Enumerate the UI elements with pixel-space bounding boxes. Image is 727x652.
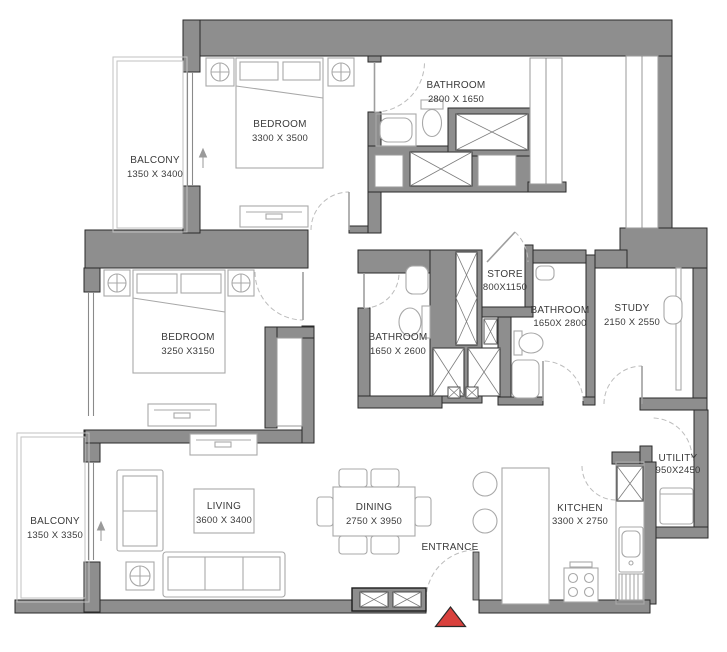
dresser-2	[148, 404, 216, 426]
room-name: BATHROOM	[368, 332, 427, 343]
armchair	[117, 470, 163, 551]
room-dims: 2150 X 2550	[604, 317, 660, 328]
entrance-door	[426, 550, 479, 600]
floor-plan-page: BEDROOM 3300 X 3500 BATHROOM 2800 X 1650…	[0, 0, 727, 652]
room-name: KITCHEN	[557, 503, 603, 514]
drainboard	[619, 574, 643, 600]
room-name: STORE	[487, 269, 523, 280]
dresser-1	[240, 206, 308, 227]
room-name: BEDROOM	[161, 332, 214, 343]
room-label-kitchen: KITCHEN 3300 X 2750	[552, 503, 608, 527]
stove	[564, 562, 598, 602]
tv-console	[190, 434, 257, 455]
room-dims: 800X1150	[483, 282, 527, 293]
room-label-store: STORE 800X1150	[483, 269, 527, 293]
room-name: BEDROOM	[253, 119, 306, 130]
room-dims: 1350 X 3350	[27, 530, 83, 541]
room-dims: 950X2450	[656, 465, 701, 476]
entrance-marker-triangle	[436, 607, 466, 627]
room-dims: 2750 X 3950	[346, 516, 402, 527]
study-desk	[664, 268, 682, 390]
room-label-bedroom-2: BEDROOM 3250 X3150	[161, 332, 214, 357]
bathroom-mid-fixtures	[399, 266, 430, 338]
room-label-bedroom-1: BEDROOM 3300 X 3500	[252, 119, 308, 144]
room-name: LIVING	[207, 501, 241, 512]
room-name: BALCONY	[130, 155, 180, 166]
room-label-bathroom-mid: BATHROOM 1650 X 2600	[368, 332, 427, 357]
washer	[660, 488, 693, 524]
bathroom-top-fixtures	[376, 100, 443, 146]
room-name: BALCONY	[30, 516, 80, 527]
room-label-living: LIVING 3600 X 3400	[196, 501, 252, 526]
room-dims: 3250 X3150	[161, 346, 214, 357]
room-name: BATHROOM	[426, 80, 485, 91]
room-dims: 3600 X 3400	[196, 515, 252, 526]
floor-plan: BEDROOM 3300 X 3500 BATHROOM 2800 X 1650…	[0, 0, 727, 652]
room-dims: 1650X 2800	[533, 318, 586, 329]
room-dims: 3300 X 2750	[552, 516, 608, 527]
room-label-bathroom-top: BATHROOM 2800 X 1650	[426, 80, 485, 105]
room-label-utility: UTILITY 950X2450	[656, 453, 701, 476]
bed-2	[104, 270, 254, 373]
entrance-label: ENTRANCE	[421, 542, 478, 553]
kitchen-fixtures	[473, 462, 644, 604]
bed-1	[206, 58, 354, 168]
room-label-study: STUDY 2150 X 2550	[604, 303, 660, 328]
room-label-bathroom-right: BATHROOM 1650X 2800	[530, 305, 589, 329]
shoe-cabinet	[352, 588, 426, 611]
room-name: BATHROOM	[530, 305, 589, 316]
room-dims: 1650 X 2600	[370, 346, 426, 357]
room-name: UTILITY	[659, 453, 698, 464]
room-name: DINING	[356, 502, 393, 513]
room-label-balcony-top: BALCONY 1350 X 3400	[127, 155, 183, 180]
room-dims: 1350 X 3400	[127, 169, 183, 180]
room-dims: 2800 X 1650	[428, 94, 484, 105]
room-name: STUDY	[614, 303, 649, 314]
side-table	[126, 562, 154, 590]
sofa	[163, 552, 285, 597]
room-label-balcony-bottom: BALCONY 1350 X 3350	[27, 516, 83, 541]
room-dims: 3300 X 3500	[252, 133, 308, 144]
